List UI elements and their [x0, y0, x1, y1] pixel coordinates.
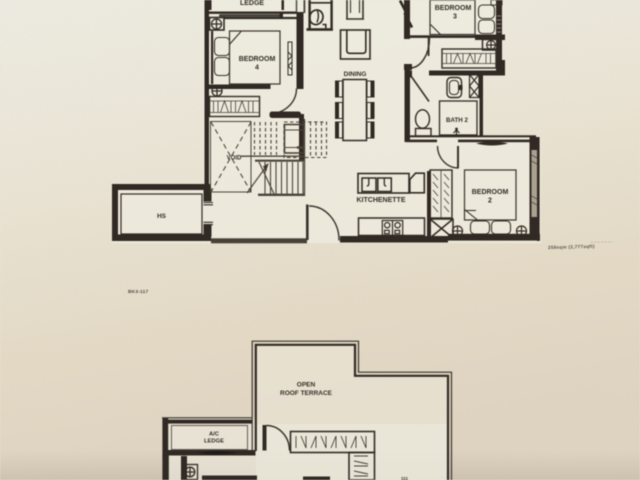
svg-text:4: 4	[255, 65, 259, 72]
svg-text:LEDGE: LEDGE	[204, 439, 224, 445]
svg-text:LEDGE: LEDGE	[240, 0, 264, 7]
svg-text:ROOF TERRACE: ROOF TERRACE	[280, 390, 333, 397]
svg-text:3: 3	[453, 14, 457, 21]
svg-text:A/C: A/C	[209, 432, 220, 438]
svg-text:KITCHENETTE: KITCHENETTE	[357, 197, 406, 204]
svg-text:BK3-117: BK3-117	[128, 289, 148, 295]
svg-text:OPEN: OPEN	[297, 382, 316, 389]
svg-text:BATH 2: BATH 2	[446, 117, 468, 124]
svg-text:HS: HS	[157, 213, 167, 220]
svg-text:2: 2	[488, 198, 492, 205]
svg-text:BEDROOM: BEDROOM	[239, 56, 276, 63]
svg-text:DINING: DINING	[344, 71, 367, 78]
svg-text:BEDROOM: BEDROOM	[472, 189, 509, 196]
svg-text:BEDROOM: BEDROOM	[435, 5, 472, 12]
svg-text:111: 111	[401, 476, 409, 480]
svg-text:VOID: VOID	[227, 156, 242, 162]
